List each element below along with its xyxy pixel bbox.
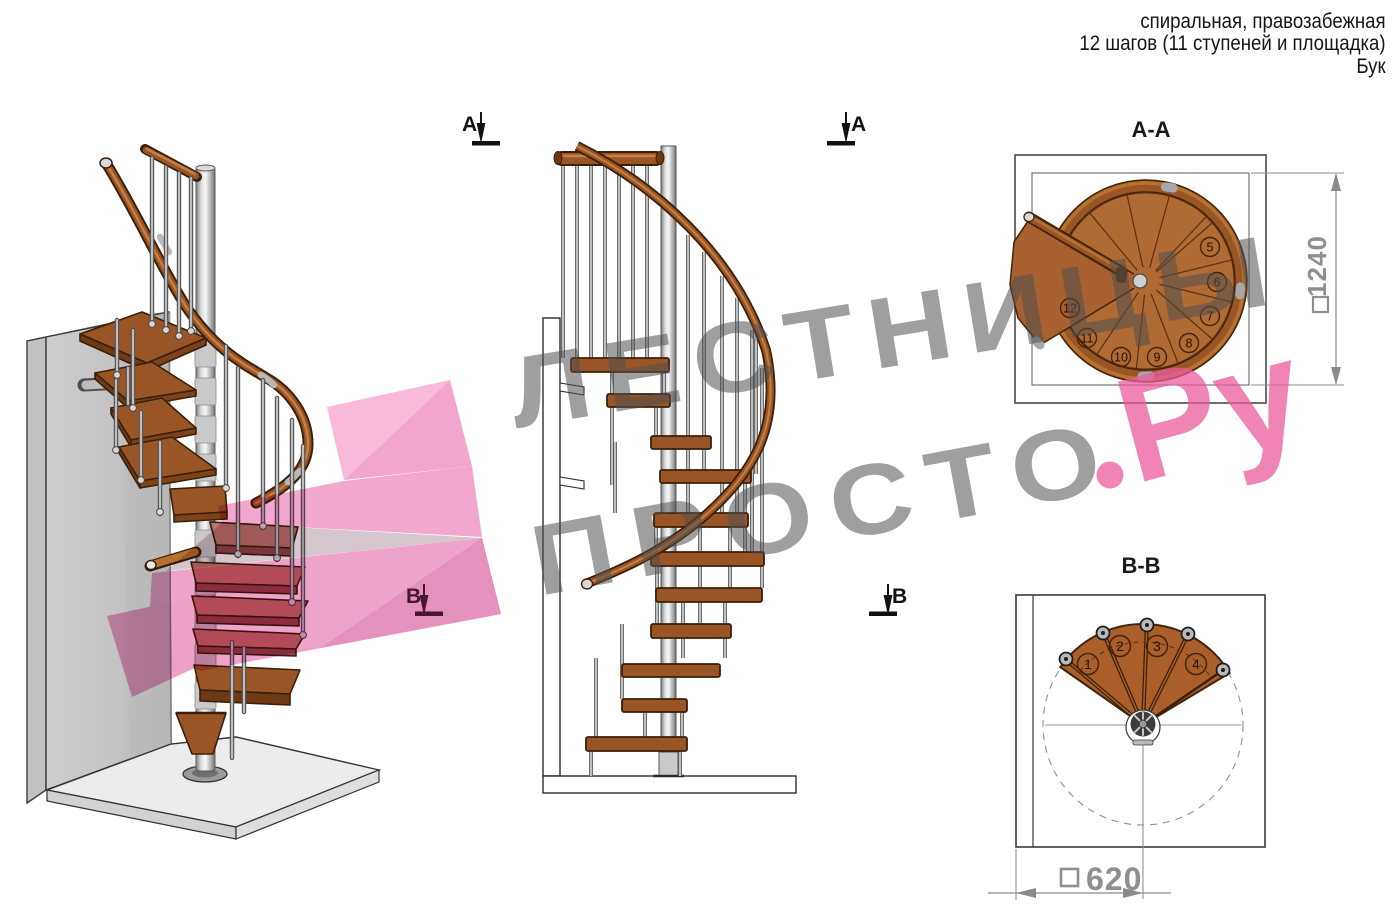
svg-text:4: 4 bbox=[1192, 657, 1200, 672]
svg-text:А-А: А-А bbox=[1131, 117, 1170, 142]
svg-text:B: B bbox=[892, 585, 907, 608]
svg-text:620: 620 bbox=[1086, 861, 1142, 897]
svg-text:1: 1 bbox=[1084, 657, 1092, 672]
svg-text:2: 2 bbox=[1116, 639, 1124, 654]
svg-text:A: A bbox=[462, 113, 477, 136]
svg-text:В-В: В-В bbox=[1121, 553, 1160, 578]
svg-text:1240: 1240 bbox=[1302, 235, 1332, 297]
svg-text:A: A bbox=[851, 113, 866, 136]
svg-text:B: B bbox=[406, 585, 421, 608]
svg-text:3: 3 bbox=[1153, 639, 1161, 654]
